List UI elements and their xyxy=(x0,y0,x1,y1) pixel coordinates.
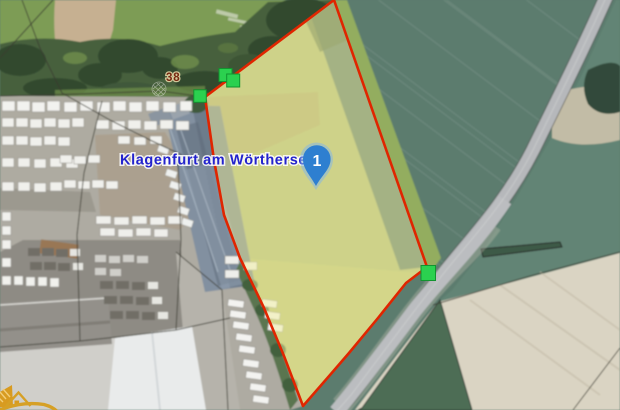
svg-text:38: 38 xyxy=(166,72,180,84)
svg-text:1: 1 xyxy=(313,153,322,170)
svg-text:Klagenfurt am Wörthersee: Klagenfurt am Wörthersee xyxy=(120,153,316,169)
